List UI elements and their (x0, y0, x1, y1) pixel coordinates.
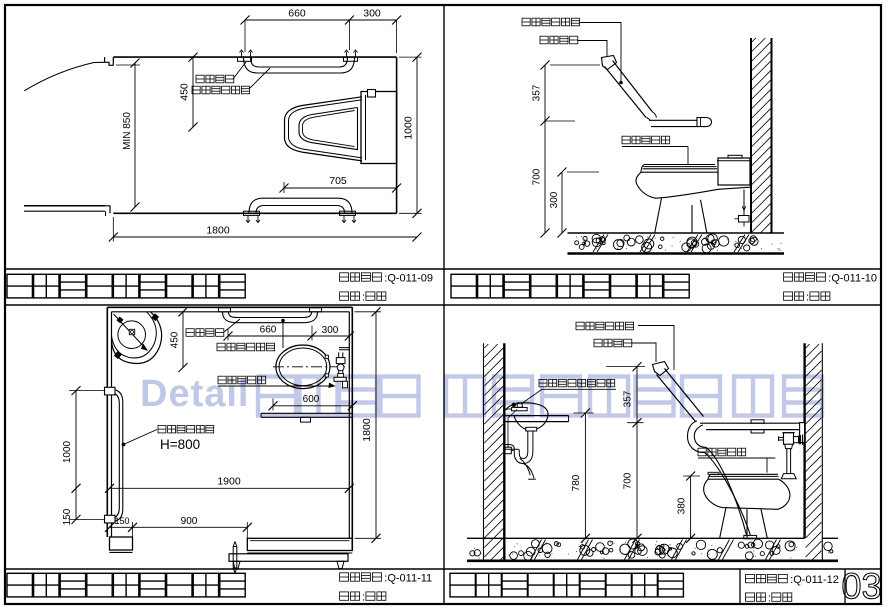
svg-text:780: 780 (571, 474, 582, 491)
svg-text:MIN 850: MIN 850 (122, 112, 133, 150)
svg-text:357: 357 (532, 84, 543, 101)
svg-text:450: 450 (179, 83, 191, 101)
svg-text::Q-011-12: :Q-011-12 (790, 574, 839, 586)
svg-text:1900: 1900 (217, 476, 241, 488)
svg-text:300: 300 (549, 191, 560, 208)
svg-text::: : (362, 592, 365, 604)
svg-text::Q-011-09: :Q-011-09 (384, 272, 433, 284)
svg-text:380: 380 (677, 497, 688, 514)
svg-text:03: 03 (841, 566, 881, 607)
svg-text:450: 450 (170, 331, 181, 348)
svg-text:Detail: Detail (140, 373, 249, 415)
svg-text:660: 660 (260, 325, 277, 336)
svg-text::: : (362, 292, 365, 304)
svg-text:1000: 1000 (62, 440, 73, 463)
svg-text:150: 150 (62, 508, 73, 525)
svg-text:H=800: H=800 (160, 437, 200, 452)
svg-text:1800: 1800 (361, 418, 373, 442)
svg-text::: : (768, 593, 771, 605)
svg-text:357: 357 (623, 390, 634, 407)
svg-text:705: 705 (329, 175, 347, 187)
svg-text:1000: 1000 (403, 116, 415, 140)
svg-text:300: 300 (363, 8, 381, 20)
svg-text::Q-011-10: :Q-011-10 (828, 272, 877, 284)
svg-text:150: 150 (114, 516, 129, 526)
svg-text:900: 900 (181, 516, 198, 527)
svg-text::: : (806, 292, 809, 304)
svg-text:300: 300 (322, 325, 339, 336)
svg-text::Q-011-11: :Q-011-11 (384, 572, 432, 584)
svg-text:700: 700 (623, 472, 634, 489)
svg-text:700: 700 (532, 168, 543, 185)
svg-text:1800: 1800 (206, 225, 230, 237)
svg-text:660: 660 (288, 8, 306, 20)
svg-text:600: 600 (303, 394, 320, 405)
